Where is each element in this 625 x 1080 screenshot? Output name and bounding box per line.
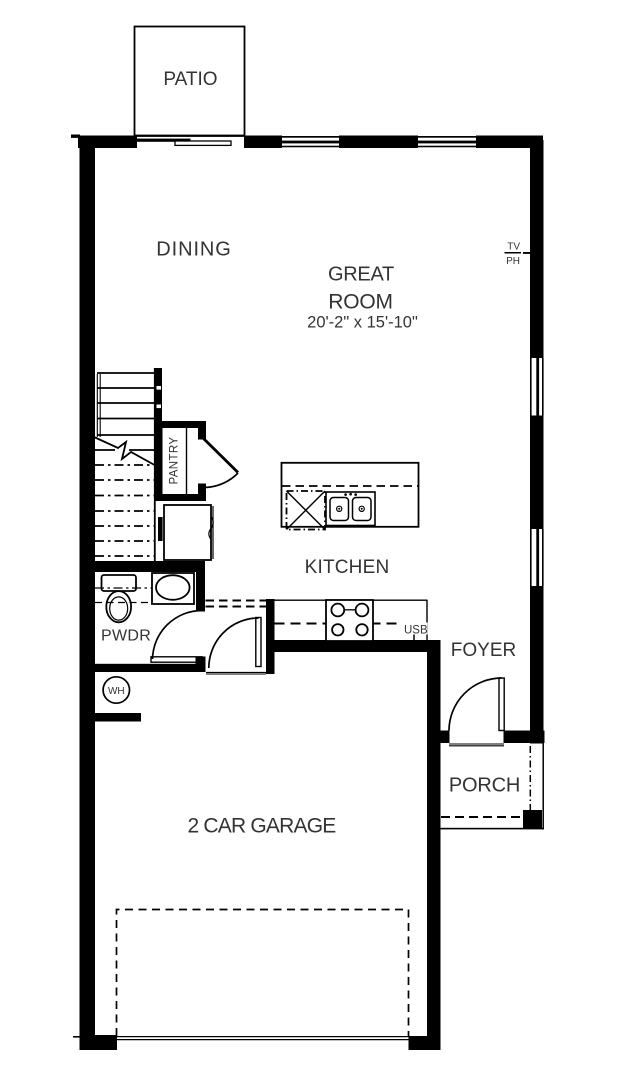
svg-text:TV: TV	[507, 242, 520, 253]
svg-text:FOYER: FOYER	[451, 640, 516, 661]
svg-text:PATIO: PATIO	[163, 69, 217, 90]
svg-text:PORCH: PORCH	[449, 775, 520, 797]
svg-text:PANTRY: PANTRY	[169, 437, 181, 485]
svg-text:KITCHEN: KITCHEN	[305, 557, 390, 578]
svg-text:ROOM: ROOM	[328, 291, 393, 314]
svg-text:GREAT: GREAT	[328, 264, 394, 286]
svg-text:2 CAR GARAGE: 2 CAR GARAGE	[188, 815, 337, 838]
svg-text:USB: USB	[404, 625, 428, 637]
svg-text:PWDR: PWDR	[101, 627, 151, 644]
svg-text:DINING: DINING	[156, 238, 231, 260]
svg-text:PH: PH	[506, 256, 520, 267]
svg-text:20'-2" x 15'-10": 20'-2" x 15'-10"	[307, 314, 418, 332]
svg-text:WH: WH	[108, 686, 125, 697]
